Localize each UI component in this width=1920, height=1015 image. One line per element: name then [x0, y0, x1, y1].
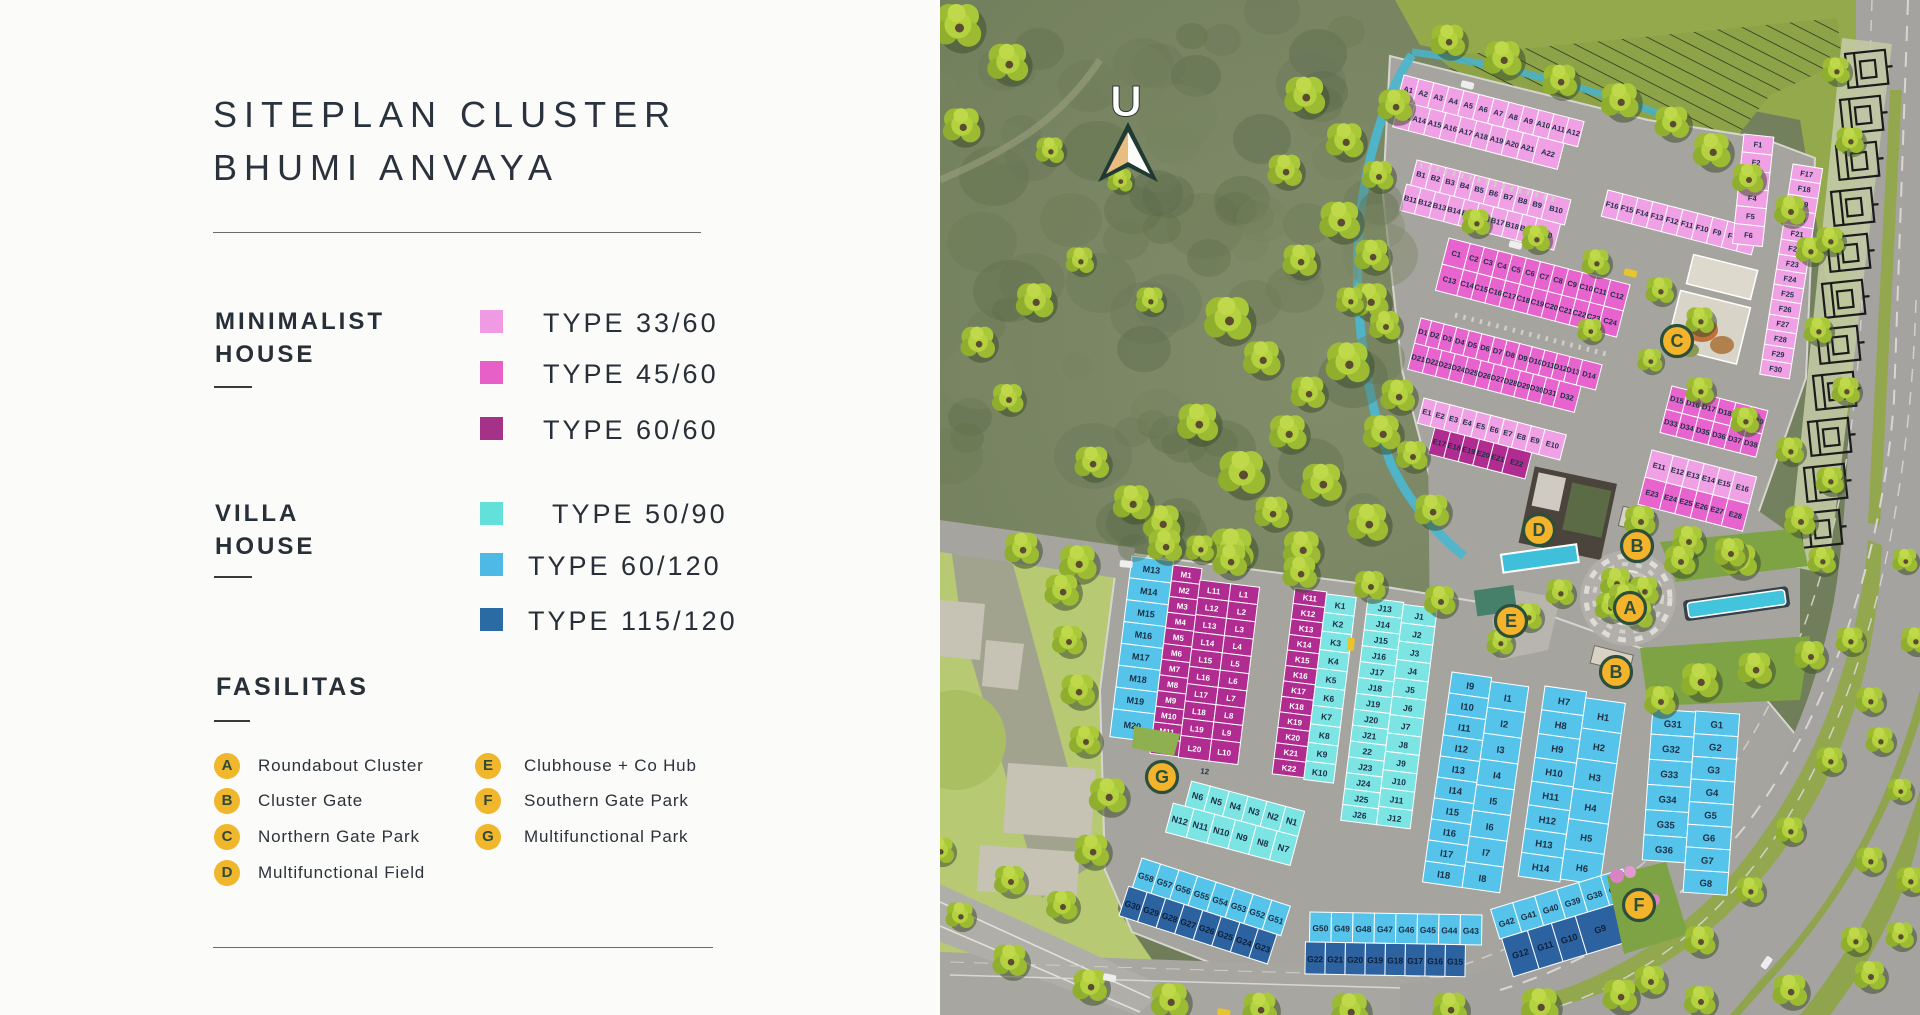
svg-text:I6: I6: [1485, 822, 1494, 834]
svg-text:G31: G31: [1663, 719, 1682, 731]
svg-text:J21: J21: [1362, 730, 1378, 742]
svg-text:I3: I3: [1496, 745, 1505, 757]
svg-text:I16: I16: [1442, 827, 1457, 840]
svg-text:M4: M4: [1174, 617, 1187, 627]
svg-text:J2: J2: [1412, 629, 1423, 640]
svg-text:K14: K14: [1296, 639, 1312, 650]
svg-text:G50: G50: [1312, 923, 1329, 933]
svg-text:J5: J5: [1405, 684, 1416, 695]
svg-text:G20: G20: [1347, 955, 1364, 965]
svg-text:G49: G49: [1334, 923, 1351, 933]
svg-text:M8: M8: [1167, 680, 1180, 690]
svg-text:I17: I17: [1439, 848, 1454, 861]
svg-text:K8: K8: [1318, 730, 1330, 741]
svg-text:L7: L7: [1226, 693, 1237, 703]
svg-text:F6: F6: [1744, 230, 1754, 240]
svg-text:J14: J14: [1375, 619, 1391, 631]
svg-text:L6: L6: [1228, 676, 1239, 686]
svg-text:J11: J11: [1389, 794, 1404, 806]
svg-text:F5: F5: [1746, 211, 1756, 221]
svg-text:K15: K15: [1294, 655, 1310, 666]
svg-text:J25: J25: [1354, 793, 1370, 805]
svg-text:I9: I9: [1465, 681, 1474, 693]
svg-text:M18: M18: [1129, 673, 1148, 685]
svg-text:K5: K5: [1325, 674, 1337, 685]
svg-text:H1: H1: [1596, 712, 1610, 725]
svg-text:I8: I8: [1478, 873, 1487, 885]
svg-text:G: G: [1155, 767, 1169, 787]
svg-text:G5: G5: [1704, 810, 1718, 822]
svg-text:K20: K20: [1285, 732, 1301, 743]
svg-text:K4: K4: [1327, 656, 1339, 667]
svg-text:H4: H4: [1584, 802, 1598, 815]
svg-text:J10: J10: [1391, 776, 1407, 788]
svg-text:H9: H9: [1550, 744, 1564, 757]
svg-text:I14: I14: [1448, 785, 1463, 798]
svg-text:G47: G47: [1377, 924, 1394, 934]
svg-text:J12: J12: [1387, 813, 1403, 825]
svg-text:K11: K11: [1302, 593, 1318, 604]
svg-text:K9: K9: [1316, 748, 1328, 759]
svg-text:G46: G46: [1398, 925, 1415, 935]
svg-text:J8: J8: [1398, 739, 1409, 750]
svg-text:K1: K1: [1334, 600, 1346, 611]
svg-text:K22: K22: [1281, 763, 1297, 774]
svg-text:G22: G22: [1307, 954, 1324, 964]
svg-text:G18: G18: [1387, 955, 1404, 965]
svg-text:I18: I18: [1436, 869, 1451, 882]
svg-text:M15: M15: [1137, 608, 1156, 620]
svg-text:G17: G17: [1407, 956, 1424, 966]
svg-text:I12: I12: [1454, 743, 1469, 756]
svg-text:K10: K10: [1311, 767, 1328, 779]
svg-text:L5: L5: [1230, 659, 1241, 669]
svg-text:K21: K21: [1283, 748, 1299, 759]
svg-text:M13: M13: [1142, 564, 1161, 576]
svg-text:J6: J6: [1403, 703, 1414, 714]
svg-text:I2: I2: [1499, 719, 1508, 731]
svg-text:K6: K6: [1323, 693, 1335, 704]
svg-text:K17: K17: [1291, 686, 1307, 697]
svg-text:J17: J17: [1369, 666, 1385, 678]
svg-text:G48: G48: [1355, 924, 1372, 934]
svg-text:K7: K7: [1321, 711, 1333, 722]
svg-text:J13: J13: [1377, 603, 1393, 615]
svg-text:J24: J24: [1356, 777, 1372, 789]
svg-text:I13: I13: [1451, 764, 1466, 777]
svg-text:U: U: [1110, 77, 1142, 126]
svg-text:J23: J23: [1358, 762, 1374, 774]
svg-text:H2: H2: [1592, 742, 1606, 755]
svg-text:L18: L18: [1191, 707, 1206, 718]
svg-text:M14: M14: [1139, 586, 1158, 598]
svg-text:L11: L11: [1207, 586, 1222, 597]
svg-text:L8: L8: [1223, 711, 1234, 721]
svg-text:I7: I7: [1481, 848, 1490, 860]
svg-text:I11: I11: [1457, 722, 1472, 735]
svg-text:L10: L10: [1217, 747, 1232, 758]
svg-text:L20: L20: [1187, 744, 1202, 755]
svg-text:G32: G32: [1662, 744, 1681, 756]
svg-text:G15: G15: [1447, 956, 1464, 966]
svg-text:G43: G43: [1463, 926, 1480, 936]
svg-text:G7: G7: [1701, 855, 1714, 867]
svg-text:L17: L17: [1194, 690, 1209, 701]
svg-text:L13: L13: [1202, 620, 1217, 631]
svg-text:M2: M2: [1178, 586, 1191, 596]
svg-text:L1: L1: [1238, 590, 1249, 600]
svg-text:M17: M17: [1131, 651, 1150, 663]
svg-text:J19: J19: [1365, 698, 1381, 710]
svg-text:G35: G35: [1656, 819, 1675, 831]
svg-text:J9: J9: [1396, 758, 1407, 769]
svg-text:A: A: [1624, 598, 1637, 618]
svg-text:G4: G4: [1705, 788, 1719, 800]
svg-text:M5: M5: [1172, 633, 1185, 643]
svg-text:E: E: [1505, 611, 1517, 631]
svg-text:L14: L14: [1200, 638, 1215, 649]
svg-text:F1: F1: [1753, 140, 1763, 150]
svg-text:L9: L9: [1221, 728, 1232, 738]
svg-text:J18: J18: [1367, 682, 1383, 694]
svg-text:M1: M1: [1180, 570, 1193, 580]
svg-text:I10: I10: [1460, 701, 1475, 714]
svg-text:L15: L15: [1198, 655, 1213, 666]
svg-text:G45: G45: [1420, 925, 1437, 935]
svg-text:H7: H7: [1557, 696, 1571, 709]
svg-text:L16: L16: [1196, 672, 1211, 683]
svg-text:J20: J20: [1364, 714, 1380, 726]
svg-text:22: 22: [1362, 746, 1373, 757]
svg-text:L4: L4: [1232, 642, 1243, 652]
svg-text:H6: H6: [1575, 863, 1589, 876]
svg-text:G19: G19: [1367, 955, 1384, 965]
svg-text:J3: J3: [1409, 648, 1420, 659]
svg-text:G36: G36: [1655, 845, 1674, 857]
svg-text:G21: G21: [1327, 954, 1344, 964]
svg-text:B: B: [1610, 662, 1623, 682]
svg-text:M7: M7: [1168, 664, 1181, 674]
svg-text:G1: G1: [1710, 720, 1724, 732]
svg-text:G8: G8: [1699, 878, 1712, 890]
svg-text:K12: K12: [1300, 609, 1316, 620]
svg-text:L3: L3: [1234, 624, 1245, 634]
svg-text:J16: J16: [1371, 650, 1387, 662]
svg-text:K13: K13: [1298, 624, 1314, 635]
svg-text:B: B: [1631, 536, 1644, 556]
svg-text:J7: J7: [1400, 721, 1411, 732]
svg-text:K19: K19: [1287, 717, 1303, 728]
svg-text:J4: J4: [1407, 666, 1418, 677]
svg-text:C: C: [1671, 331, 1684, 351]
svg-text:K2: K2: [1332, 619, 1344, 630]
svg-text:K18: K18: [1289, 701, 1305, 712]
svg-text:L12: L12: [1204, 603, 1219, 614]
svg-text:H8: H8: [1554, 720, 1568, 733]
svg-text:G6: G6: [1702, 833, 1715, 845]
svg-text:D: D: [1533, 520, 1546, 540]
svg-text:I15: I15: [1445, 806, 1460, 819]
svg-text:G44: G44: [1441, 925, 1458, 935]
svg-text:M16: M16: [1134, 629, 1153, 641]
svg-text:M3: M3: [1176, 601, 1189, 611]
svg-text:J15: J15: [1373, 635, 1389, 647]
svg-text:J1: J1: [1414, 611, 1425, 622]
svg-text:12: 12: [1200, 766, 1210, 776]
svg-text:K16: K16: [1293, 670, 1309, 681]
svg-text:G3: G3: [1707, 765, 1720, 777]
svg-text:M9: M9: [1165, 696, 1178, 706]
svg-text:G16: G16: [1427, 956, 1444, 966]
svg-text:F: F: [1634, 895, 1645, 915]
svg-text:M6: M6: [1170, 648, 1183, 658]
svg-text:H5: H5: [1579, 832, 1593, 845]
svg-text:J26: J26: [1352, 809, 1368, 821]
svg-text:K3: K3: [1330, 637, 1342, 648]
svg-text:M19: M19: [1126, 695, 1145, 707]
svg-text:G2: G2: [1708, 742, 1721, 754]
svg-text:L19: L19: [1189, 724, 1204, 735]
svg-text:L2: L2: [1236, 607, 1247, 617]
svg-text:H3: H3: [1588, 772, 1602, 785]
svg-text:G33: G33: [1660, 769, 1679, 781]
svg-text:G34: G34: [1658, 794, 1677, 806]
